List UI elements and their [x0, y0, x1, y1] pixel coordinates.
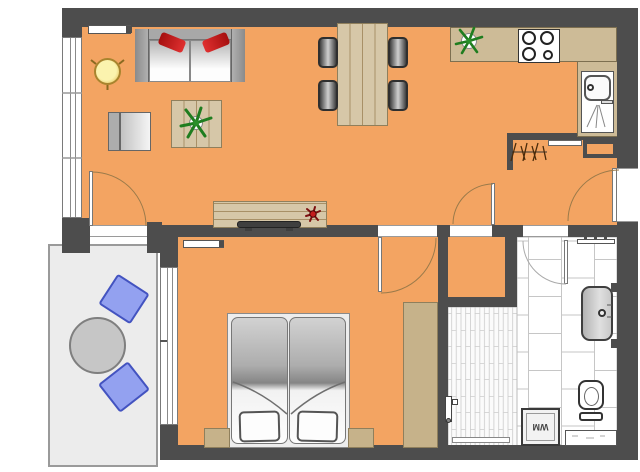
bathroom-cabinet: [565, 430, 617, 446]
armchair-backrest: [108, 112, 120, 151]
shower-drain: [452, 437, 510, 443]
living-room-window: [62, 37, 82, 218]
shower-fitting-box: [452, 399, 458, 405]
window-glazing-line: [167, 268, 168, 424]
balcony-door-leaf: [89, 171, 93, 226]
bed-pillow-right: [297, 410, 339, 442]
round-side-table: [94, 58, 121, 85]
radiator-bedroom-valve: [219, 241, 224, 247]
washbasin-bracket: [611, 339, 617, 348]
wall-left-top-block: [62, 27, 82, 37]
sofa-armrest-left: [135, 29, 149, 82]
nightstand-left: [204, 428, 230, 448]
towel-rail-hook: [604, 236, 607, 239]
balcony-round-table: [69, 317, 126, 374]
bathroom-door-opening: [523, 225, 568, 237]
washing-machine: WM: [521, 408, 560, 446]
wall-storage-right: [505, 225, 517, 307]
armchair-seat: [120, 112, 151, 151]
shower-fitting-knob: [446, 418, 451, 423]
washing-machine-label: WM: [527, 414, 554, 440]
towel-rail-hook: [584, 236, 587, 239]
towel-rail-hook: [594, 236, 597, 239]
radiator-bedroom: [183, 240, 224, 248]
stove-burner: [522, 47, 536, 61]
tv-foot: [286, 228, 293, 231]
stove-burner: [522, 31, 536, 45]
bathroom-door-leaf: [564, 240, 568, 284]
wardrobe: [403, 302, 438, 448]
kitchen-sink-handle: [601, 100, 613, 104]
floor-plan: WM: [0, 0, 640, 472]
washbasin-bracket: [611, 283, 617, 292]
dining-chair: [388, 37, 408, 68]
nightstand-right: [348, 428, 374, 448]
basin-faucet: [598, 309, 606, 317]
entrance-door-leaf: [612, 168, 617, 222]
wall-right: [617, 8, 638, 460]
bedroom-door-opening: [378, 225, 437, 237]
washbasin: [581, 286, 613, 341]
wall-bedroom-left-bottom: [160, 425, 178, 460]
dining-chair: [388, 80, 408, 111]
dining-chair: [318, 37, 338, 68]
storage-door-opening: [450, 225, 492, 237]
washing-machine-inner: WM: [526, 413, 555, 441]
entrance-door-opening: [617, 168, 638, 222]
radiator-living: [88, 25, 131, 34]
bedroom-door-leaf: [378, 237, 382, 292]
wall-bedroom-left-top: [160, 225, 178, 267]
tv-foot: [245, 228, 252, 231]
walk-in-shower-floor: [448, 307, 517, 447]
storage-door-leaf: [491, 183, 495, 225]
stove-burner: [543, 50, 553, 60]
tv: [237, 221, 301, 228]
towel-rail: [577, 239, 615, 244]
window-glazing-line: [70, 38, 71, 217]
balcony-door-opening: [90, 225, 147, 237]
dining-table: [337, 23, 388, 126]
toilet-seat: [584, 387, 599, 406]
coffee-table: [171, 100, 222, 148]
storage-room-floor: [448, 237, 505, 297]
window-glazing-line: [172, 268, 173, 424]
toilet-cistern: [579, 412, 603, 421]
radiator-living-valve: [126, 26, 132, 33]
sofa-armrest-right: [231, 29, 245, 82]
bedroom-balcony-window: [160, 267, 178, 425]
kitchen-faucet: [587, 84, 594, 91]
hall-shelf: [548, 140, 582, 146]
dining-chair: [318, 80, 338, 111]
installation-shaft-inner: [587, 144, 613, 154]
bathroom-door-swing-arc: [523, 241, 566, 284]
window-glazing-line: [75, 38, 76, 217]
wall-hall-niche-side: [507, 133, 513, 170]
stove-burner: [540, 31, 554, 45]
bed-pillow-left: [239, 410, 281, 442]
